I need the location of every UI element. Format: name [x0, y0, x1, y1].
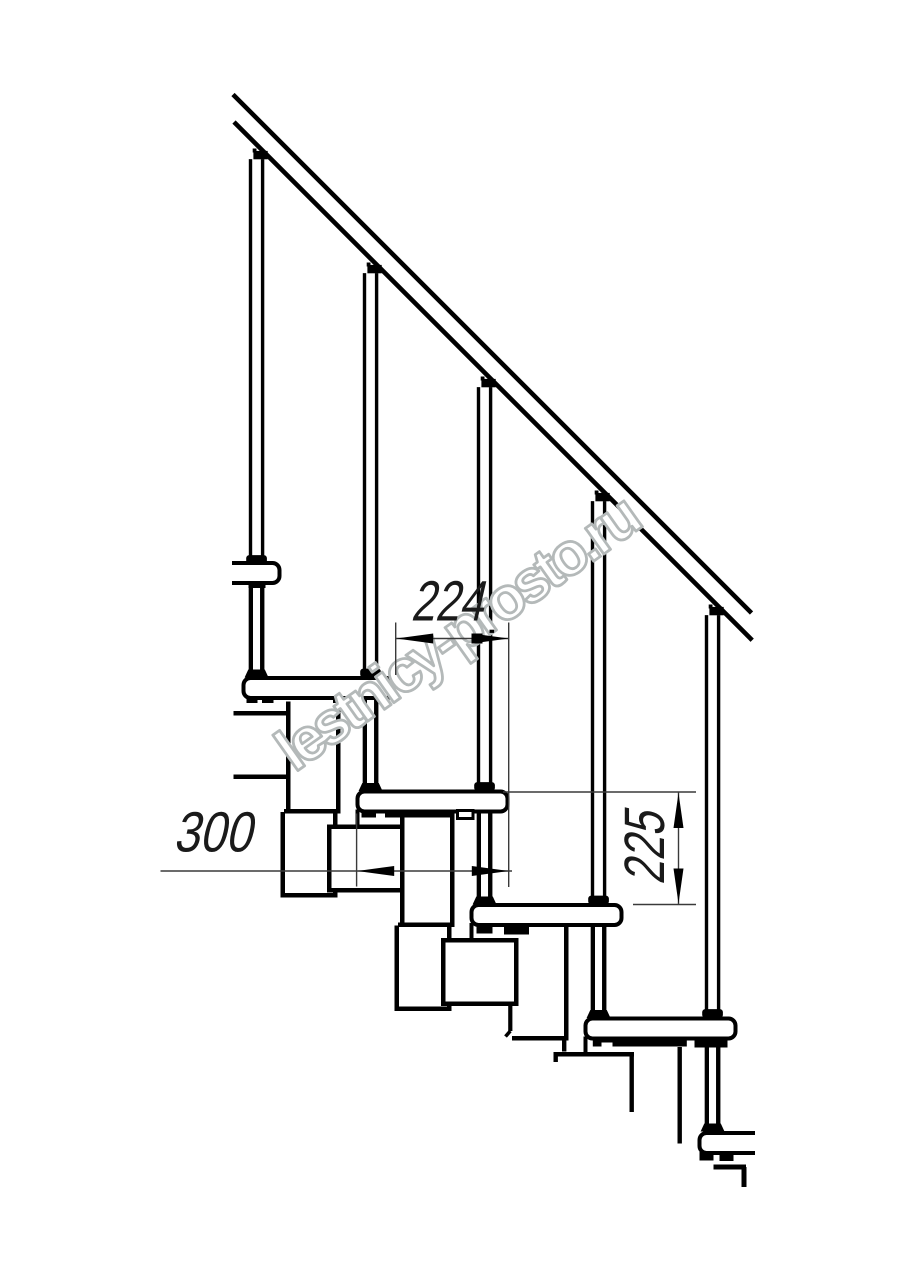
svg-text:225: 225 [612, 801, 676, 888]
svg-text:224: 224 [408, 568, 495, 632]
svg-text:300: 300 [170, 801, 263, 865]
